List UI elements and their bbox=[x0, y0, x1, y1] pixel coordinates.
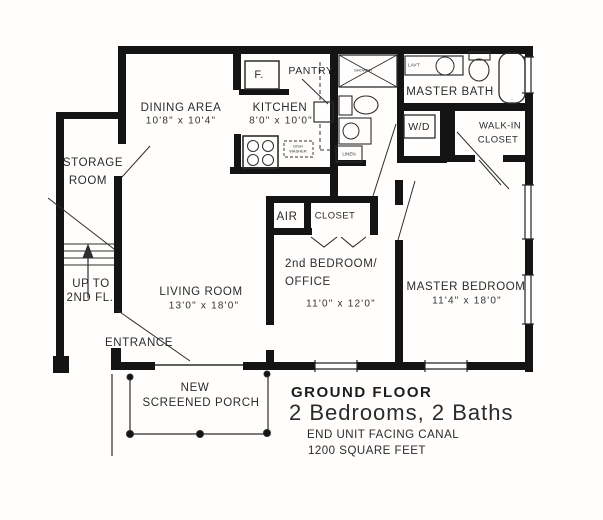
stove-burner bbox=[263, 141, 274, 152]
bedroom2-label-1: 2nd BEDROOM/ bbox=[285, 258, 377, 270]
wall-segment bbox=[118, 46, 533, 54]
toilet-tank bbox=[339, 96, 352, 115]
shower-label: SHOWER bbox=[354, 68, 372, 73]
vanity bbox=[339, 118, 371, 144]
window-bedroom2-south bbox=[315, 360, 357, 372]
master-bedroom-dims: 11'4" x 18'0" bbox=[432, 296, 502, 307]
wall-segment bbox=[447, 155, 475, 162]
wall-segment bbox=[114, 176, 122, 313]
title-end-unit: END UNIT FACING CANAL bbox=[307, 429, 459, 441]
wall-segment bbox=[239, 89, 289, 95]
stove-burner bbox=[248, 155, 259, 166]
door-swing-line bbox=[117, 310, 190, 361]
porch-label-1: NEW bbox=[181, 382, 210, 394]
stove-burner bbox=[263, 155, 274, 166]
window-master-bedroom-east-1 bbox=[522, 185, 534, 239]
walkin-closet-label-1: WALK-IN bbox=[479, 121, 521, 132]
toilet bbox=[469, 59, 489, 81]
wall-segment bbox=[243, 362, 315, 370]
wall-segment bbox=[56, 112, 118, 119]
wall-segment bbox=[357, 362, 425, 370]
stove-burner bbox=[248, 141, 259, 152]
wall-segment bbox=[447, 103, 455, 162]
walkin-closet-label-2: CLOSET bbox=[478, 135, 518, 146]
door-swing-line bbox=[302, 79, 328, 104]
wall-segment bbox=[266, 350, 274, 362]
wall-segment bbox=[370, 196, 378, 235]
wall-segment bbox=[266, 203, 274, 325]
wall-segment bbox=[111, 362, 155, 370]
sink-basin bbox=[436, 57, 454, 75]
linen-label: LINEN bbox=[342, 152, 355, 157]
wall-segment bbox=[397, 156, 447, 163]
porch-post bbox=[127, 374, 133, 380]
porch-post bbox=[264, 371, 270, 377]
wall-segment bbox=[395, 240, 403, 370]
door-swing-line bbox=[479, 160, 501, 185]
wall-segment bbox=[304, 196, 311, 235]
wall-segment bbox=[233, 54, 241, 90]
title-square-feet: 1200 SQUARE FEET bbox=[308, 445, 426, 457]
bathtub bbox=[499, 53, 525, 103]
wall-segment bbox=[53, 356, 69, 373]
living-room-dims: 13'0" x 18'0" bbox=[169, 301, 239, 312]
entrance-label: ENTRANCE bbox=[105, 337, 173, 349]
pantry-label: PANTRY bbox=[288, 65, 333, 77]
closet-label: CLOSET bbox=[315, 211, 355, 222]
master-bath-label: MASTER BATH bbox=[406, 86, 494, 98]
master-bedroom-label: MASTER BEDROOM bbox=[407, 281, 526, 293]
washer-dryer-label: W/D bbox=[408, 121, 430, 133]
title-beds-baths: 2 Bedrooms, 2 Baths bbox=[289, 400, 513, 426]
sink-basin bbox=[343, 123, 359, 139]
floorplan-page: DINING AREA 10'8" x 10'4" KITCHEN 8'0" x… bbox=[0, 0, 603, 520]
door-swing-line bbox=[122, 146, 150, 177]
air-handler-label: AIR bbox=[277, 211, 298, 223]
storage-room-label-1: STORAGE bbox=[63, 157, 123, 169]
wall-segment bbox=[118, 46, 126, 144]
toilet bbox=[354, 96, 378, 114]
wall-segment bbox=[56, 112, 64, 373]
closet-bifold-doors bbox=[311, 237, 366, 247]
wall-segment bbox=[266, 196, 378, 203]
bifold-door bbox=[311, 237, 337, 247]
dining-area-label: DINING AREA bbox=[141, 102, 222, 114]
title-ground-floor: GROUND FLOOR bbox=[291, 384, 432, 401]
wall-segment bbox=[467, 362, 533, 370]
porch-post bbox=[264, 430, 271, 437]
bedroom2-dims: 11'0" x 12'0" bbox=[306, 299, 376, 310]
dining-area-dims: 10'8" x 10'4" bbox=[146, 116, 216, 127]
kitchen-dims: 8'0" x 10'0" bbox=[249, 116, 313, 127]
wall-segment bbox=[397, 103, 533, 111]
bifold-door bbox=[341, 237, 366, 247]
window-master-bedroom-south bbox=[425, 360, 467, 372]
window-master-bath bbox=[522, 57, 534, 93]
porch bbox=[112, 365, 271, 456]
wall-segment bbox=[503, 155, 533, 162]
lavatory-label: LAV'T bbox=[408, 63, 420, 68]
door-swing-line bbox=[373, 124, 396, 196]
stairs-label-1: UP TO bbox=[72, 278, 110, 290]
bedroom2-label-2: OFFICE bbox=[285, 276, 331, 288]
refrigerator-label: F. bbox=[254, 69, 263, 81]
kitchen-label: KITCHEN bbox=[253, 102, 308, 114]
stairs-label-2: 2ND FL. bbox=[66, 292, 113, 304]
porch-post bbox=[197, 431, 204, 438]
porch-label-2: SCREENED PORCH bbox=[142, 397, 259, 409]
porch-post bbox=[127, 431, 134, 438]
wall-segment bbox=[440, 103, 447, 163]
living-room-label: LIVING ROOM bbox=[159, 286, 242, 298]
storage-room-label-2: ROOM bbox=[69, 175, 107, 187]
wall-segment bbox=[395, 180, 403, 205]
dishwasher-label-2: WASHER bbox=[289, 149, 306, 154]
